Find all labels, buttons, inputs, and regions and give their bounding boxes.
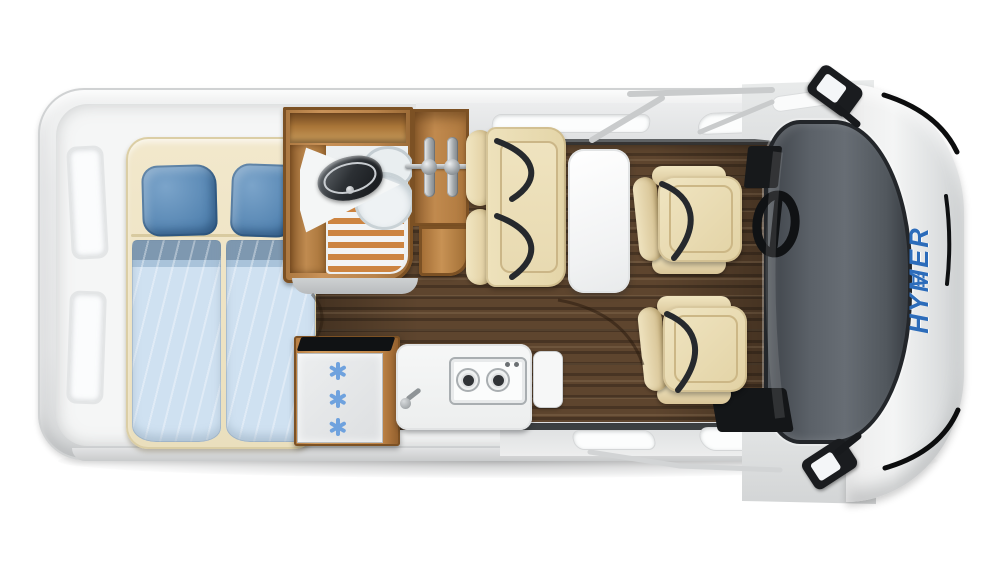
- hanger-knob: [444, 159, 460, 175]
- duvet: [132, 240, 221, 442]
- swivel-seat-driver: [641, 294, 753, 404]
- stove-knob: [514, 362, 519, 367]
- pillow: [141, 164, 218, 237]
- bathroom-top-shelf: [290, 113, 406, 143]
- bench-seat-panel: [500, 141, 558, 273]
- kitchen-faucet: [400, 398, 411, 409]
- rear-door-window-lower: [66, 290, 107, 404]
- clothes-hanger-icon: [447, 137, 458, 197]
- hanger-knob: [421, 159, 437, 175]
- stove-burner-icon: [456, 368, 480, 392]
- dinette-table: [568, 149, 630, 293]
- snowflake-icon: [329, 362, 347, 380]
- seat-cushion: [658, 176, 742, 262]
- swivel-seat-passenger: [636, 164, 748, 274]
- clothes-hanger-icon: [424, 137, 435, 197]
- snowflake-icon: [329, 418, 347, 436]
- bathroom-step: [292, 278, 418, 294]
- floorplan-canvas: ≡HYMER: [0, 0, 1000, 563]
- side-window-bottom-1: [571, 430, 658, 450]
- sink-faucet-icon: [346, 186, 354, 194]
- snowflake-icon: [329, 390, 347, 408]
- brand-logo: ≡HYMER: [902, 195, 936, 365]
- fridge-top-opening: [297, 337, 396, 351]
- seat-cushion: [663, 306, 747, 392]
- kitchen-end-panel: [533, 351, 563, 408]
- rear-door-window-upper: [66, 145, 109, 260]
- brand-name: HYMER: [904, 226, 935, 334]
- stove-knob: [505, 362, 510, 367]
- wardrobe-lower-cabinet: [419, 226, 469, 276]
- stove-burner-icon: [486, 368, 510, 392]
- cab-doorway-top: [744, 146, 782, 188]
